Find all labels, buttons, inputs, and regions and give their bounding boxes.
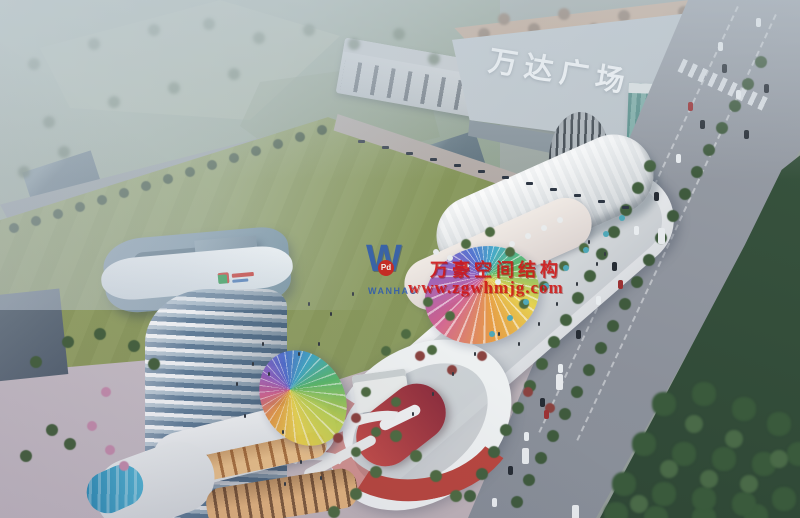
aerial-rendering-scene: 万达广场 (0, 0, 800, 518)
watermark-website-text: www.zgwhmjg.com (408, 278, 564, 298)
watermark: W Pd WANHAO 万豪空间结构 www.zgwhmjg.com (360, 246, 590, 310)
watermark-logo-badge: Pd (378, 260, 394, 276)
